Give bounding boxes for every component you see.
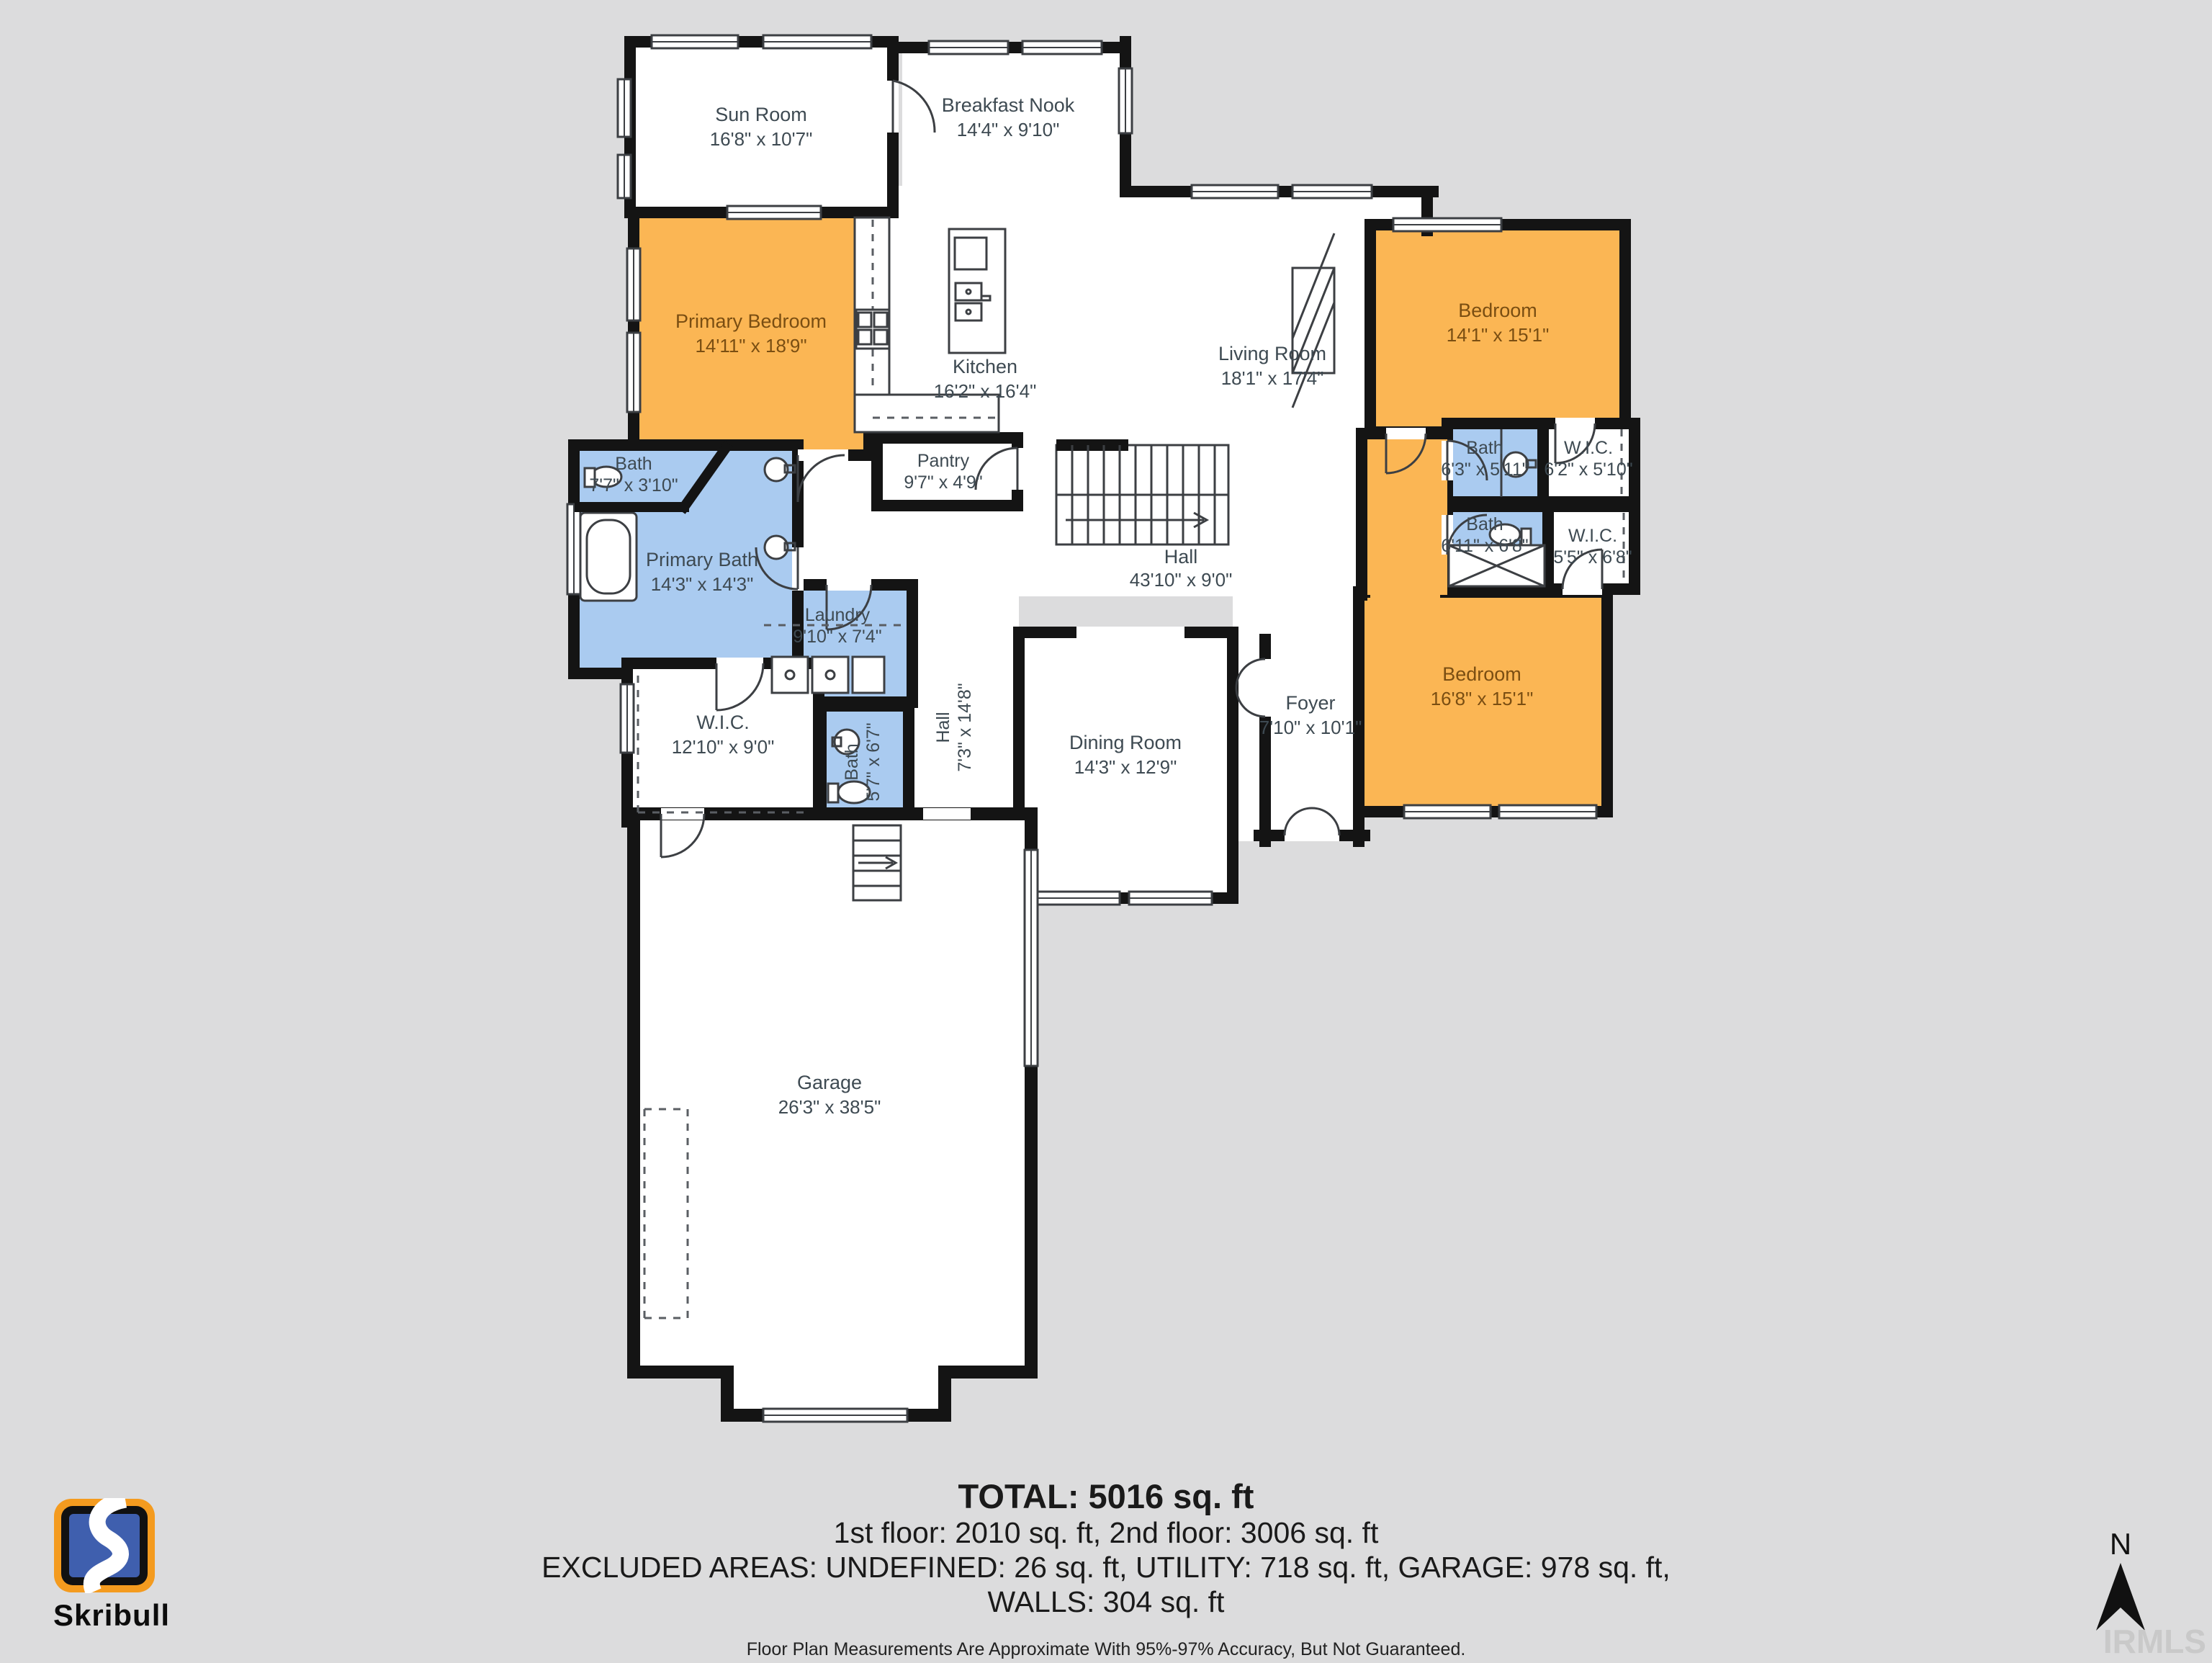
walls-area: WALLS: 304 sq. ft <box>0 1584 2212 1619</box>
label-bedroom-top: Bedroom <box>1458 300 1537 321</box>
label-primary-bath: Primary Bath <box>646 549 758 570</box>
svg-text:5'5" x 6'8": 5'5" x 6'8" <box>1553 547 1632 568</box>
window-icon <box>1022 41 1102 54</box>
window-icon <box>1025 850 1038 1066</box>
label-bath-top: Bath <box>1466 438 1503 458</box>
bedroom-connector <box>1362 436 1447 595</box>
label-wic-mid: W.I.C. <box>1568 526 1617 546</box>
laundry-counter <box>853 657 884 693</box>
north-arrow-icon: N <box>2081 1527 2160 1635</box>
svg-text:6'2" x 5'10": 6'2" x 5'10" <box>1544 460 1632 480</box>
window-icon <box>727 206 821 219</box>
floorplan-page: { "colors": { "background": "#DCDCDD", "… <box>0 0 2212 1659</box>
label-foyer: Foyer <box>1285 692 1335 714</box>
svg-text:Bath: Bath <box>842 743 862 780</box>
label-primary-bedroom: Primary Bedroom <box>675 310 827 332</box>
disclaimer: Floor Plan Measurements Are Approximate … <box>0 1639 2212 1660</box>
svg-text:16'8" x 15'1": 16'8" x 15'1" <box>1431 688 1534 709</box>
window-icon <box>621 684 634 753</box>
window-icon <box>763 1409 907 1422</box>
label-hall-upper: Hall <box>1164 546 1198 568</box>
svg-text:16'2" x 16'4": 16'2" x 16'4" <box>934 380 1037 402</box>
window-icon <box>1037 892 1120 905</box>
svg-text:14'3" x 14'3": 14'3" x 14'3" <box>651 573 754 595</box>
label-dining-room: Dining Room <box>1069 732 1182 753</box>
skribull-logo: Skribull <box>53 1498 156 1633</box>
north-label: N <box>2110 1527 2131 1561</box>
label-sun-room: Sun Room <box>715 104 807 125</box>
svg-text:9'7" x 4'9": 9'7" x 4'9" <box>904 472 982 493</box>
excluded-areas: EXCLUDED AREAS: UNDEFINED: 26 sq. ft, UT… <box>0 1550 2212 1584</box>
label-bath-mid: Bath <box>1466 514 1503 534</box>
window-icon <box>567 504 580 594</box>
svg-text:7'3" x 14'8": 7'3" x 14'8" <box>955 683 975 771</box>
room-sun-room <box>630 42 893 212</box>
bedroom-connector-opening <box>1370 585 1440 601</box>
window-icon <box>1119 68 1132 133</box>
floor-areas: 1st floor: 2010 sq. ft, 2nd floor: 3006 … <box>0 1515 2212 1550</box>
floorplan-canvas: Sun Room 16'8" x 10'7" Breakfast Nook 14… <box>0 0 2212 1659</box>
window-icon <box>1404 805 1491 818</box>
svg-text:Hall: Hall <box>933 712 953 743</box>
svg-text:18'1" x 17'4": 18'1" x 17'4" <box>1221 367 1324 389</box>
label-garage: Garage <box>797 1072 862 1093</box>
summary-block: TOTAL: 5016 sq. ft 1st floor: 2010 sq. f… <box>0 1478 2212 1660</box>
svg-text:43'10" x 9'0": 43'10" x 9'0" <box>1130 569 1233 591</box>
svg-text:14'11" x 18'9": 14'11" x 18'9" <box>695 335 806 357</box>
svg-text:6'11" x 6'8": 6'11" x 6'8" <box>1441 536 1528 556</box>
window-icon <box>1393 218 1501 231</box>
label-breakfast-nook: Breakfast Nook <box>942 94 1075 116</box>
window-icon <box>618 79 631 137</box>
svg-text:26'3" x 38'5": 26'3" x 38'5" <box>778 1096 881 1118</box>
logo-text: Skribull <box>53 1598 156 1633</box>
svg-text:7'7" x 3'10": 7'7" x 3'10" <box>589 475 678 496</box>
window-icon <box>1499 805 1596 818</box>
stove-icon <box>856 310 889 349</box>
label-bath-small: Bath <box>615 454 652 474</box>
kitchen-island <box>949 229 1005 353</box>
svg-text:14'4" x 9'10": 14'4" x 9'10" <box>957 119 1060 140</box>
label-kitchen: Kitchen <box>953 356 1017 377</box>
irmls-watermark: IRMLS <box>2103 1622 2206 1661</box>
svg-text:14'1" x 15'1": 14'1" x 15'1" <box>1447 324 1550 346</box>
room-primary-bedroom <box>634 212 869 455</box>
label-laundry: Laundry <box>805 605 871 625</box>
window-icon <box>1292 185 1372 198</box>
window-icon <box>618 155 631 198</box>
window-icon <box>1129 892 1212 905</box>
label-pantry: Pantry <box>917 451 970 471</box>
svg-text:9'10" x 7'4": 9'10" x 7'4" <box>793 627 881 647</box>
label-bedroom-bottom: Bedroom <box>1442 663 1521 685</box>
logo-icon <box>53 1498 156 1593</box>
label-living-room: Living Room <box>1218 343 1326 364</box>
window-icon <box>763 35 871 48</box>
svg-text:6'3" x 5'11": 6'3" x 5'11" <box>1441 460 1528 480</box>
svg-text:16'8" x 10'7": 16'8" x 10'7" <box>710 128 813 150</box>
svg-text:14'3" x 12'9": 14'3" x 12'9" <box>1074 756 1177 778</box>
svg-text:12'10" x 9'0": 12'10" x 9'0" <box>672 736 775 758</box>
window-icon <box>627 333 640 412</box>
dryer-icon <box>812 657 848 693</box>
window-icon <box>1192 185 1278 198</box>
window-icon <box>652 35 738 48</box>
room-pantry <box>877 438 1017 506</box>
svg-text:7'10" x 10'1": 7'10" x 10'1" <box>1259 717 1362 738</box>
stairs-icon <box>1056 439 1228 544</box>
bathtub-icon <box>580 513 637 601</box>
window-icon <box>627 248 640 321</box>
window-icon <box>929 41 1008 54</box>
total-area: TOTAL: 5016 sq. ft <box>0 1478 2212 1515</box>
label-wic-top: W.I.C. <box>1564 438 1613 458</box>
stairs-icon <box>853 825 901 900</box>
svg-text:5'7" x 6'7": 5'7" x 6'7" <box>863 722 884 801</box>
washer-icon <box>772 657 808 693</box>
label-wic-left: W.I.C. <box>696 712 750 733</box>
